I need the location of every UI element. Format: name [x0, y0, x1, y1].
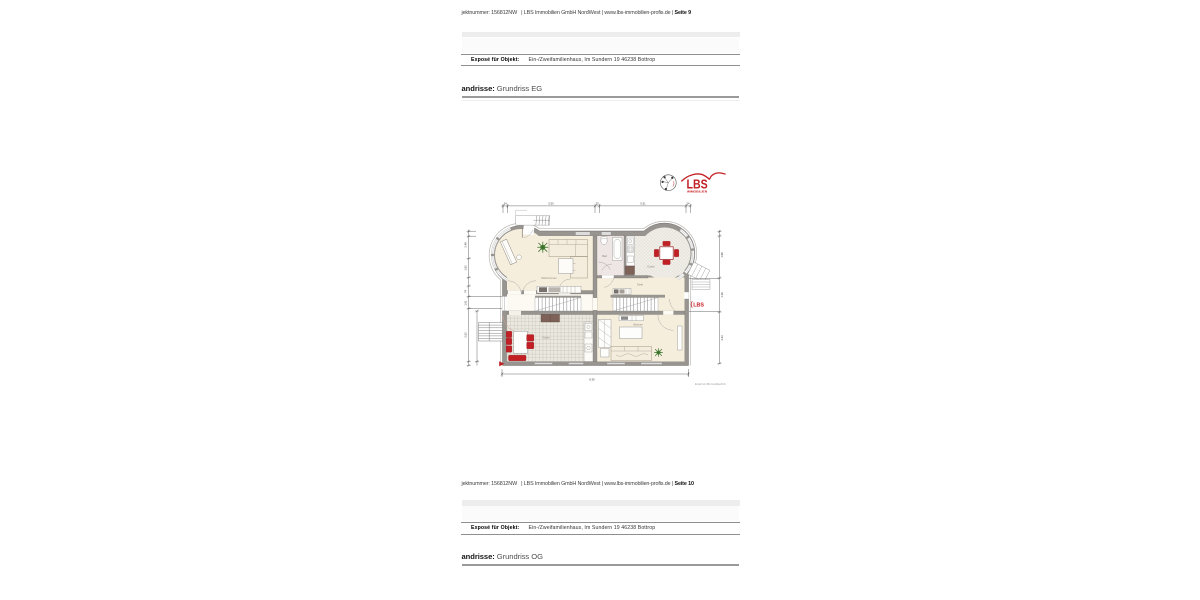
svg-text:3.43: 3.43 — [720, 335, 724, 341]
svg-text:IMMOBILIEN: IMMOBILIEN — [687, 190, 707, 194]
svg-text:24: 24 — [504, 201, 507, 205]
svg-text:Wohnzimmer: Wohnzimmer — [541, 276, 556, 280]
svg-text:5.50: 5.50 — [548, 201, 554, 205]
svg-text:2.49: 2.49 — [464, 242, 468, 248]
svg-text:2.52: 2.52 — [464, 332, 468, 338]
svg-text:24: 24 — [687, 201, 690, 205]
svg-text:1.38: 1.38 — [720, 292, 724, 298]
svg-text:Wohnen: Wohnen — [633, 322, 643, 326]
svg-text:1.62: 1.62 — [464, 265, 468, 271]
svg-text:Diele: Diele — [637, 283, 643, 287]
svg-text:LBS: LBS — [687, 177, 708, 191]
svg-text:LBS: LBS — [693, 303, 704, 309]
svg-text:1.01: 1.01 — [464, 300, 468, 306]
svg-text:Küche: Küche — [542, 336, 550, 340]
svg-text:Küche: Küche — [647, 265, 655, 269]
svg-text:74: 74 — [464, 290, 468, 293]
svg-text:Erstellt mit LBS ImmobilienPro: Erstellt mit LBS ImmobilienProfi — [695, 383, 726, 386]
svg-text:8.36: 8.36 — [589, 378, 595, 382]
svg-text:Bad: Bad — [602, 254, 607, 258]
svg-text:1.88: 1.88 — [720, 252, 724, 258]
svg-text:25: 25 — [596, 201, 599, 205]
svg-text:5.51: 5.51 — [640, 201, 646, 205]
